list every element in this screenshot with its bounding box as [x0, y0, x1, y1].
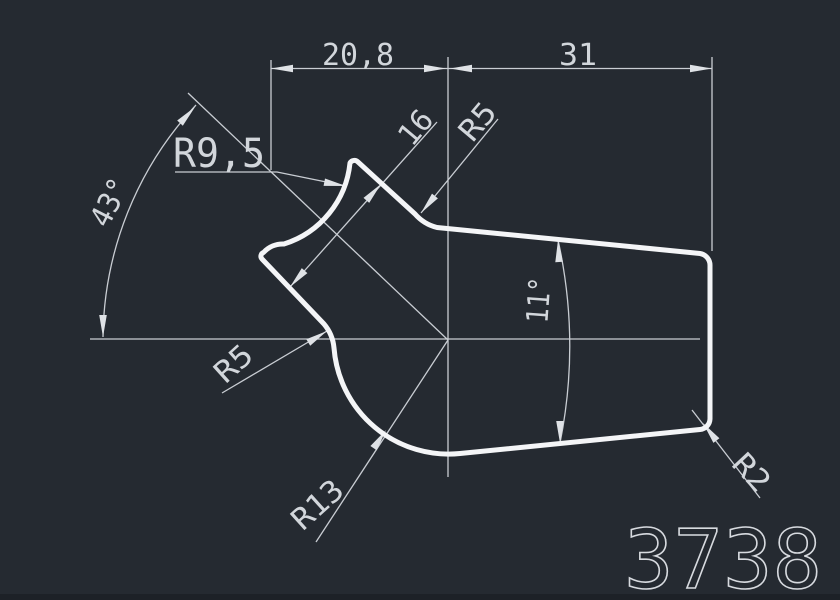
angle-label-11: 11°	[520, 276, 558, 324]
cad-drawing-canvas[interactable]: 20,8 31 R9,5 43° 16 R5 11° R5 R13 R2 373…	[0, 0, 840, 600]
dim-label-31: 31	[559, 38, 597, 73]
dim-label-20-8: 20,8	[322, 38, 394, 73]
canvas-background	[0, 0, 840, 600]
part-number-text: 3738	[624, 513, 822, 600]
drawing-viewport: 20,8 31 R9,5 43° 16 R5 11° R5 R13 R2 373…	[0, 0, 840, 600]
radius-label-r9-5: R9,5	[173, 131, 265, 177]
